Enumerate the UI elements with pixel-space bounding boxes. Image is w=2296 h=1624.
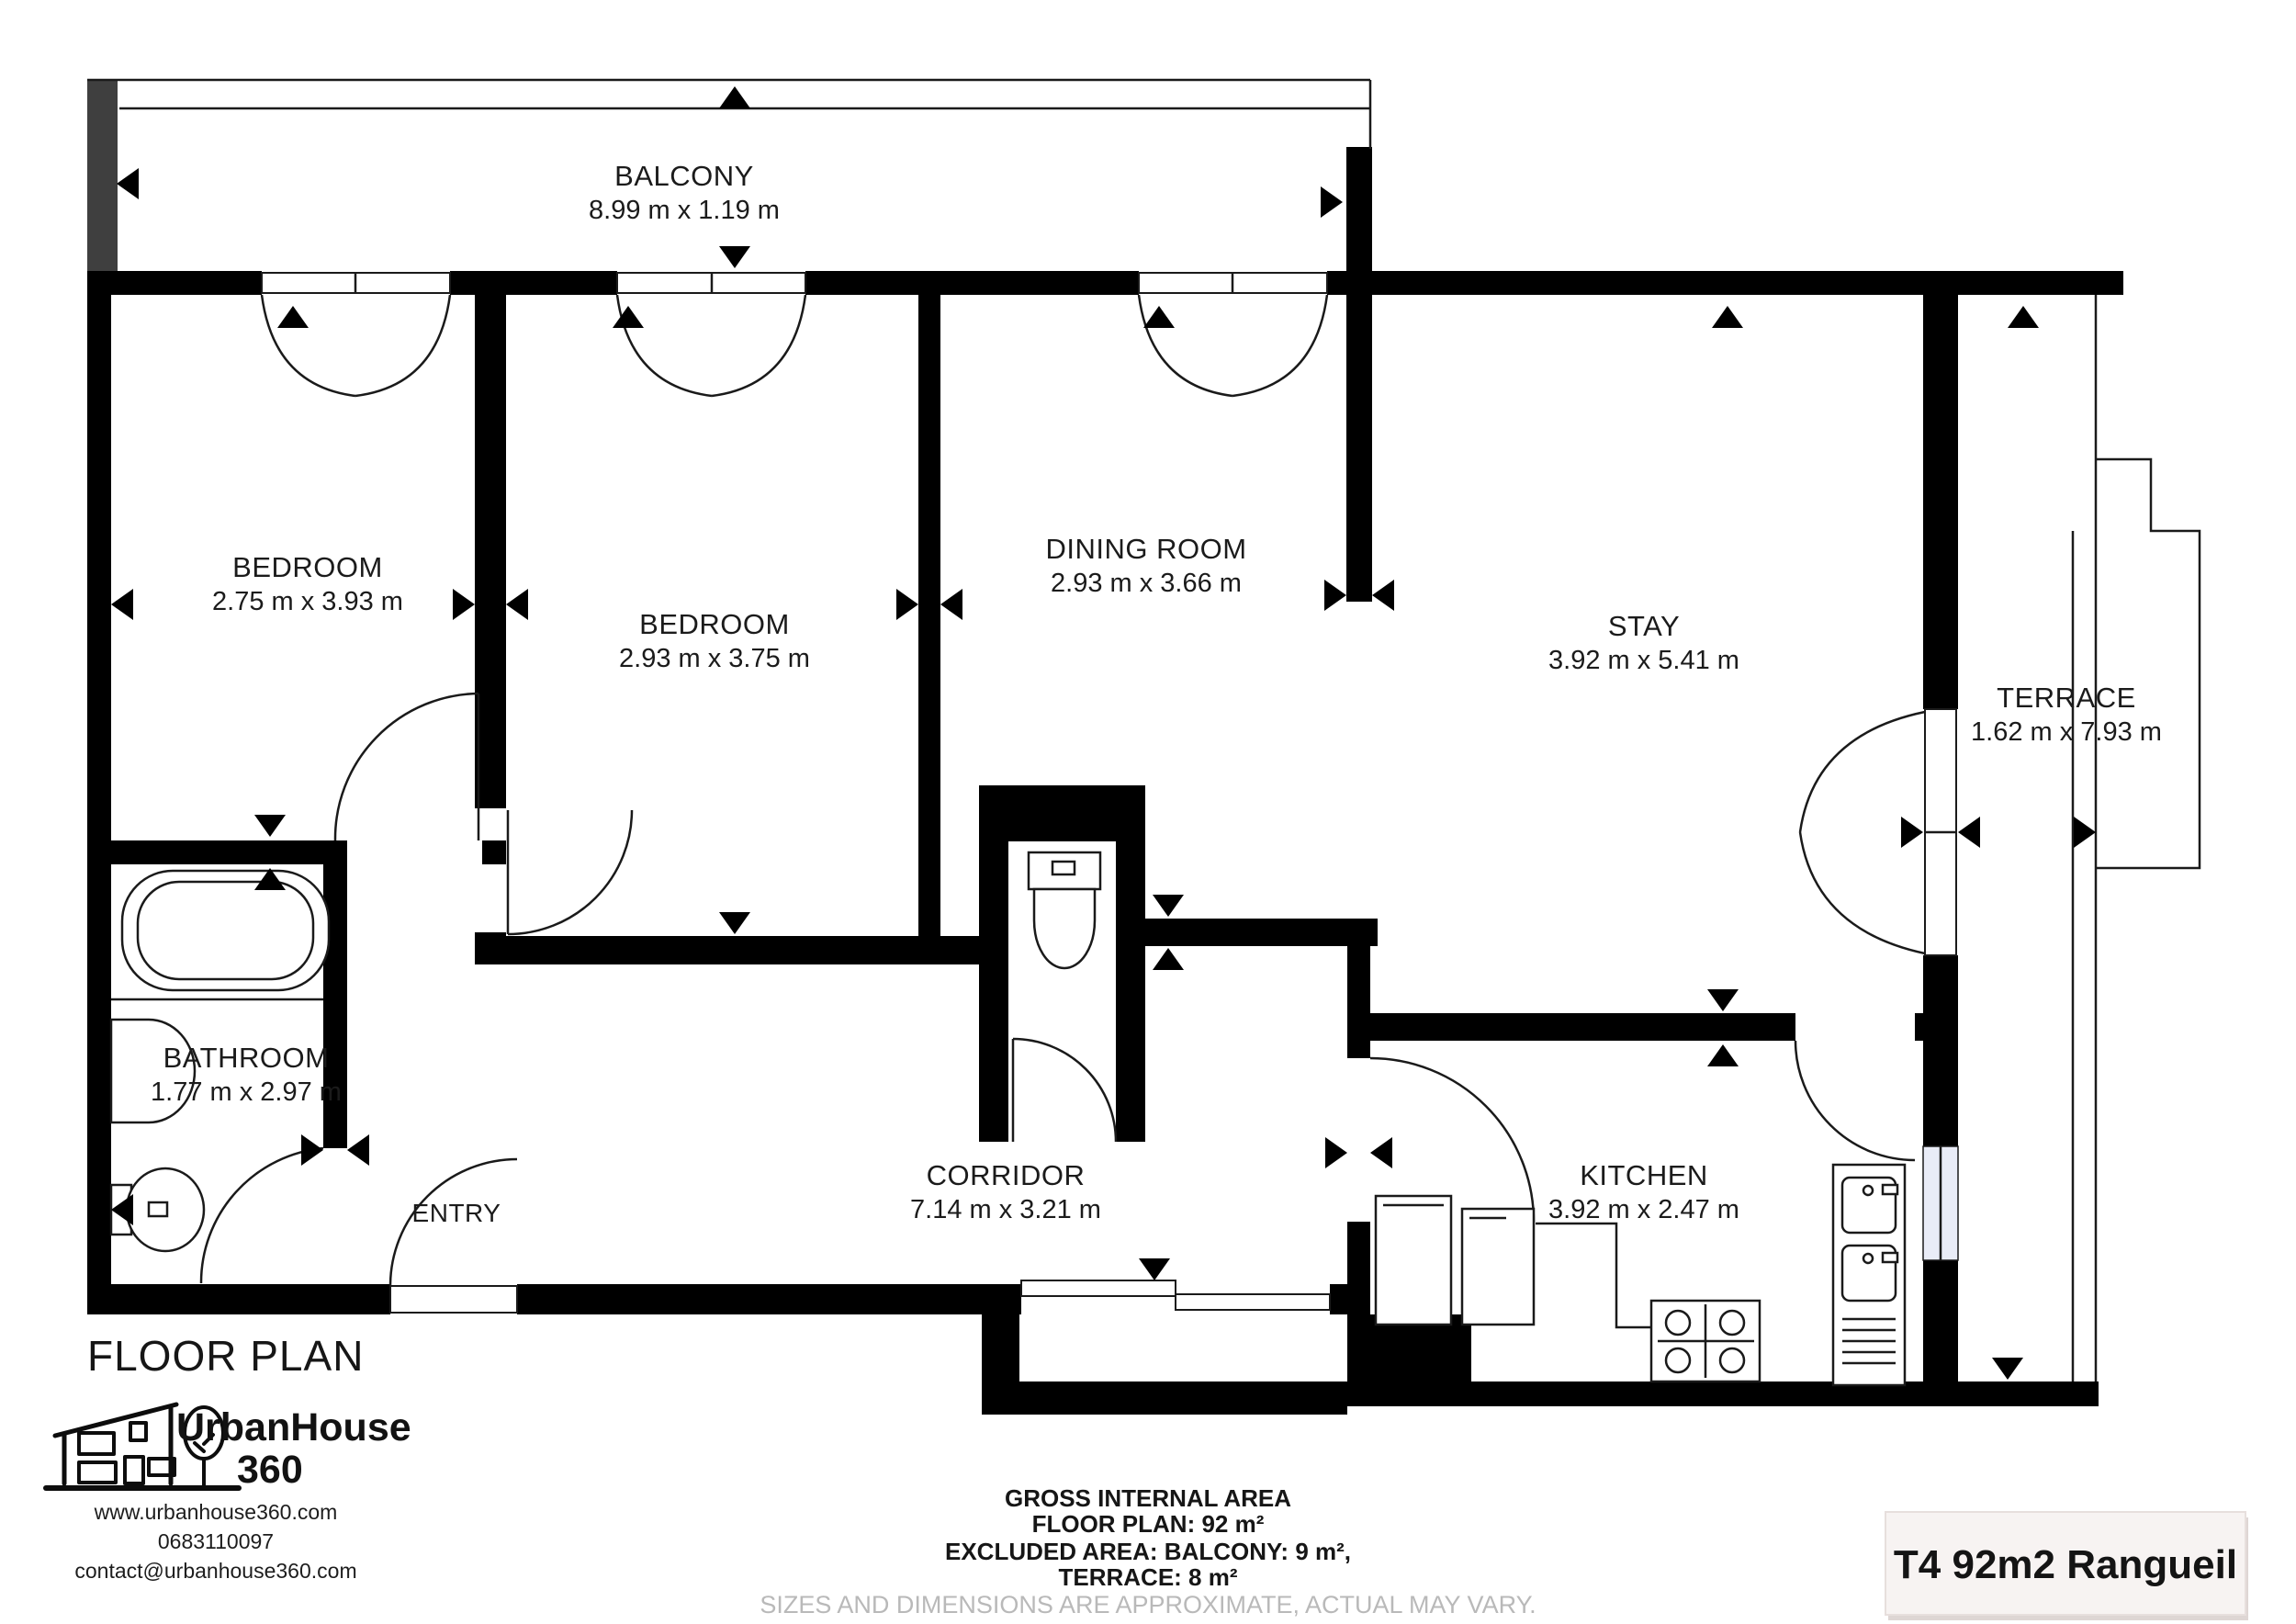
bedroom2-door-arc — [508, 810, 632, 934]
triangle-right-icon — [896, 589, 918, 620]
badge-title: T4 92m2 Rangueil — [1894, 1542, 2237, 1587]
wall — [1145, 919, 1378, 946]
area-line-1: GROSS INTERNAL AREA — [1005, 1484, 1291, 1512]
triangle-up-icon — [1707, 1044, 1739, 1066]
wall — [87, 271, 262, 295]
wall — [1327, 271, 2123, 295]
wall — [506, 936, 979, 964]
wall — [1330, 1284, 1347, 1314]
terrace-french-door-arc — [1800, 712, 1925, 832]
balcony-door-arc — [1139, 295, 1232, 396]
wall — [1370, 1013, 1795, 1041]
terrace-outline — [2073, 295, 2200, 1382]
room-dims-dining: 2.93 m x 3.66 m — [1051, 569, 1242, 598]
balcony-left-bar — [87, 81, 118, 271]
balcony-door-arc — [1232, 295, 1327, 396]
brand-name: UrbanHouse — [176, 1405, 411, 1449]
wall — [1347, 1222, 1370, 1314]
wall — [982, 1382, 1347, 1415]
room-label-bedroom-2: BEDROOM — [639, 608, 790, 640]
fridge-icon — [1376, 1196, 1451, 1325]
faucet-spout — [1883, 1253, 1897, 1262]
room-label-dining: DINING ROOM — [1045, 533, 1246, 565]
room-dims-stay: 3.92 m x 5.41 m — [1548, 646, 1739, 675]
room-dims-terrace: 1.62 m x 7.93 m — [1971, 717, 2162, 747]
floor-plan-page: BALCONY 8.99 m x 1.19 m BEDROOM 2.75 m x… — [0, 0, 2296, 1624]
room-dims-corridor: 7.14 m x 3.21 m — [910, 1195, 1101, 1224]
triangle-right-icon — [1324, 580, 1346, 611]
listing-badge: T4 92m2 Rangueil — [1885, 1512, 2248, 1620]
triangle-down-icon — [1992, 1358, 2023, 1380]
wall-wc-top — [979, 785, 1145, 841]
balcony-door-arc — [712, 295, 805, 396]
house-icon — [55, 1404, 176, 1436]
balcony-door-arc — [617, 295, 712, 396]
house-window — [79, 1433, 114, 1454]
page-title: FLOOR PLAN — [87, 1332, 364, 1380]
appliance-icon — [1462, 1209, 1534, 1325]
wall-left — [87, 271, 111, 1314]
wall-bottom-kitchen — [1347, 1382, 2099, 1406]
wall — [1915, 1013, 1958, 1041]
balcony-door-arc — [355, 295, 450, 396]
disclaimer-text: SIZES AND DIMENSIONS ARE APPROXIMATE, AC… — [760, 1591, 1536, 1618]
triangle-up-icon — [1143, 306, 1175, 328]
counter-outline — [1536, 1224, 1653, 1327]
room-label-bedroom-1: BEDROOM — [232, 551, 383, 583]
wall — [1116, 841, 1145, 1142]
wall — [475, 932, 506, 964]
room-label-entry: ENTRY — [412, 1199, 501, 1227]
area-line-3: EXCLUDED AREA: BALCONY: 9 m², — [945, 1538, 1351, 1565]
faucet-spout — [1883, 1185, 1897, 1194]
triangle-right-icon — [1325, 1137, 1347, 1168]
wall — [1346, 271, 1372, 602]
floor-plan-canvas: BALCONY 8.99 m x 1.19 m BEDROOM 2.75 m x… — [0, 0, 2296, 1624]
triangle-up-icon — [719, 86, 750, 108]
toilet-button — [149, 1202, 167, 1216]
closet-sliding-panel — [1021, 1280, 1176, 1296]
room-dims-bathroom: 1.77 m x 2.97 m — [151, 1077, 342, 1107]
wall — [1347, 946, 1370, 1058]
wall — [1923, 1260, 1958, 1382]
wall — [1923, 295, 1958, 709]
triangle-left-icon — [1372, 580, 1394, 611]
corridor-closet — [1021, 1280, 1330, 1310]
house-window — [79, 1462, 116, 1483]
triangle-left-icon — [117, 168, 139, 199]
balcony-door-arc — [262, 295, 355, 396]
triangle-down-icon — [254, 815, 286, 837]
triangle-right-icon — [2074, 817, 2096, 848]
wall — [982, 1314, 1019, 1382]
triangle-up-icon — [1712, 306, 1743, 328]
room-dims-kitchen: 3.92 m x 2.47 m — [1548, 1195, 1739, 1224]
closet-sliding-panel — [1176, 1294, 1330, 1310]
house-window — [130, 1423, 146, 1440]
triangle-left-icon — [347, 1134, 369, 1166]
brand-number: 360 — [237, 1448, 303, 1492]
wc-toilet-bowl-icon — [1034, 889, 1095, 968]
area-line-2: FLOOR PLAN: 92 m² — [1032, 1510, 1265, 1538]
wc-toilet-button — [1052, 862, 1075, 874]
triangle-right-icon — [1901, 817, 1923, 848]
brand-email: contact@urbanhouse360.com — [74, 1559, 356, 1583]
bedroom1-door-arc — [335, 694, 478, 840]
bathtub-inner — [138, 882, 313, 979]
wall — [805, 271, 1139, 295]
room-label-bathroom: BATHROOM — [163, 1042, 330, 1074]
entry-door-frame — [390, 1286, 517, 1313]
triangle-up-icon — [613, 306, 644, 328]
area-line-4: TERRACE: 8 m² — [1058, 1563, 1237, 1591]
room-label-stay: STAY — [1608, 610, 1680, 642]
wall — [1923, 1041, 1958, 1146]
room-label-balcony: BALCONY — [614, 160, 754, 192]
room-label-terrace: TERRACE — [1997, 682, 2136, 714]
triangle-down-icon — [719, 912, 750, 934]
triangle-up-icon — [277, 306, 309, 328]
wall — [918, 271, 940, 936]
triangle-left-icon — [506, 589, 528, 620]
triangle-left-icon — [1370, 1137, 1392, 1168]
room-label-corridor: CORRIDOR — [927, 1159, 1086, 1191]
kitchen-stay-door-arc — [1795, 1041, 1915, 1160]
wall — [1923, 955, 1958, 1013]
triangle-right-icon — [453, 589, 475, 620]
terrace-french-door-arc — [1800, 832, 1925, 953]
room-label-kitchen: KITCHEN — [1580, 1159, 1708, 1191]
house-door — [125, 1457, 143, 1483]
terrace-facade-step — [2096, 459, 2200, 868]
bathroom-door-arc — [201, 1148, 323, 1283]
room-dims-bedroom-1: 2.75 m x 3.93 m — [212, 587, 403, 616]
brand-website: www.urbanhouse360.com — [94, 1500, 338, 1524]
triangle-down-icon — [719, 246, 750, 268]
wall — [482, 840, 506, 864]
room-dims-bedroom-2: 2.93 m x 3.75 m — [619, 644, 810, 673]
triangle-down-icon — [1707, 989, 1739, 1011]
wc-fixtures — [1029, 852, 1100, 968]
area-summary: GROSS INTERNAL AREA FLOOR PLAN: 92 m² EX… — [760, 1484, 1536, 1618]
wall — [87, 1284, 390, 1314]
triangle-left-icon — [940, 589, 962, 620]
triangle-left-icon — [111, 589, 133, 620]
brand-phone: 0683110097 — [158, 1529, 274, 1553]
wall — [979, 841, 1008, 1142]
room-dims-balcony: 8.99 m x 1.19 m — [589, 196, 780, 225]
triangle-right-icon — [1321, 186, 1343, 218]
triangle-up-icon — [2008, 306, 2039, 328]
triangle-down-icon — [1139, 1258, 1170, 1280]
wall — [517, 1284, 1021, 1314]
wc-door-arc — [1013, 1039, 1116, 1142]
wall — [111, 840, 335, 864]
triangle-left-icon — [1958, 817, 1980, 848]
triangle-down-icon — [1153, 895, 1184, 917]
triangle-up-icon — [1153, 948, 1184, 970]
triangle-right-icon — [301, 1134, 323, 1166]
